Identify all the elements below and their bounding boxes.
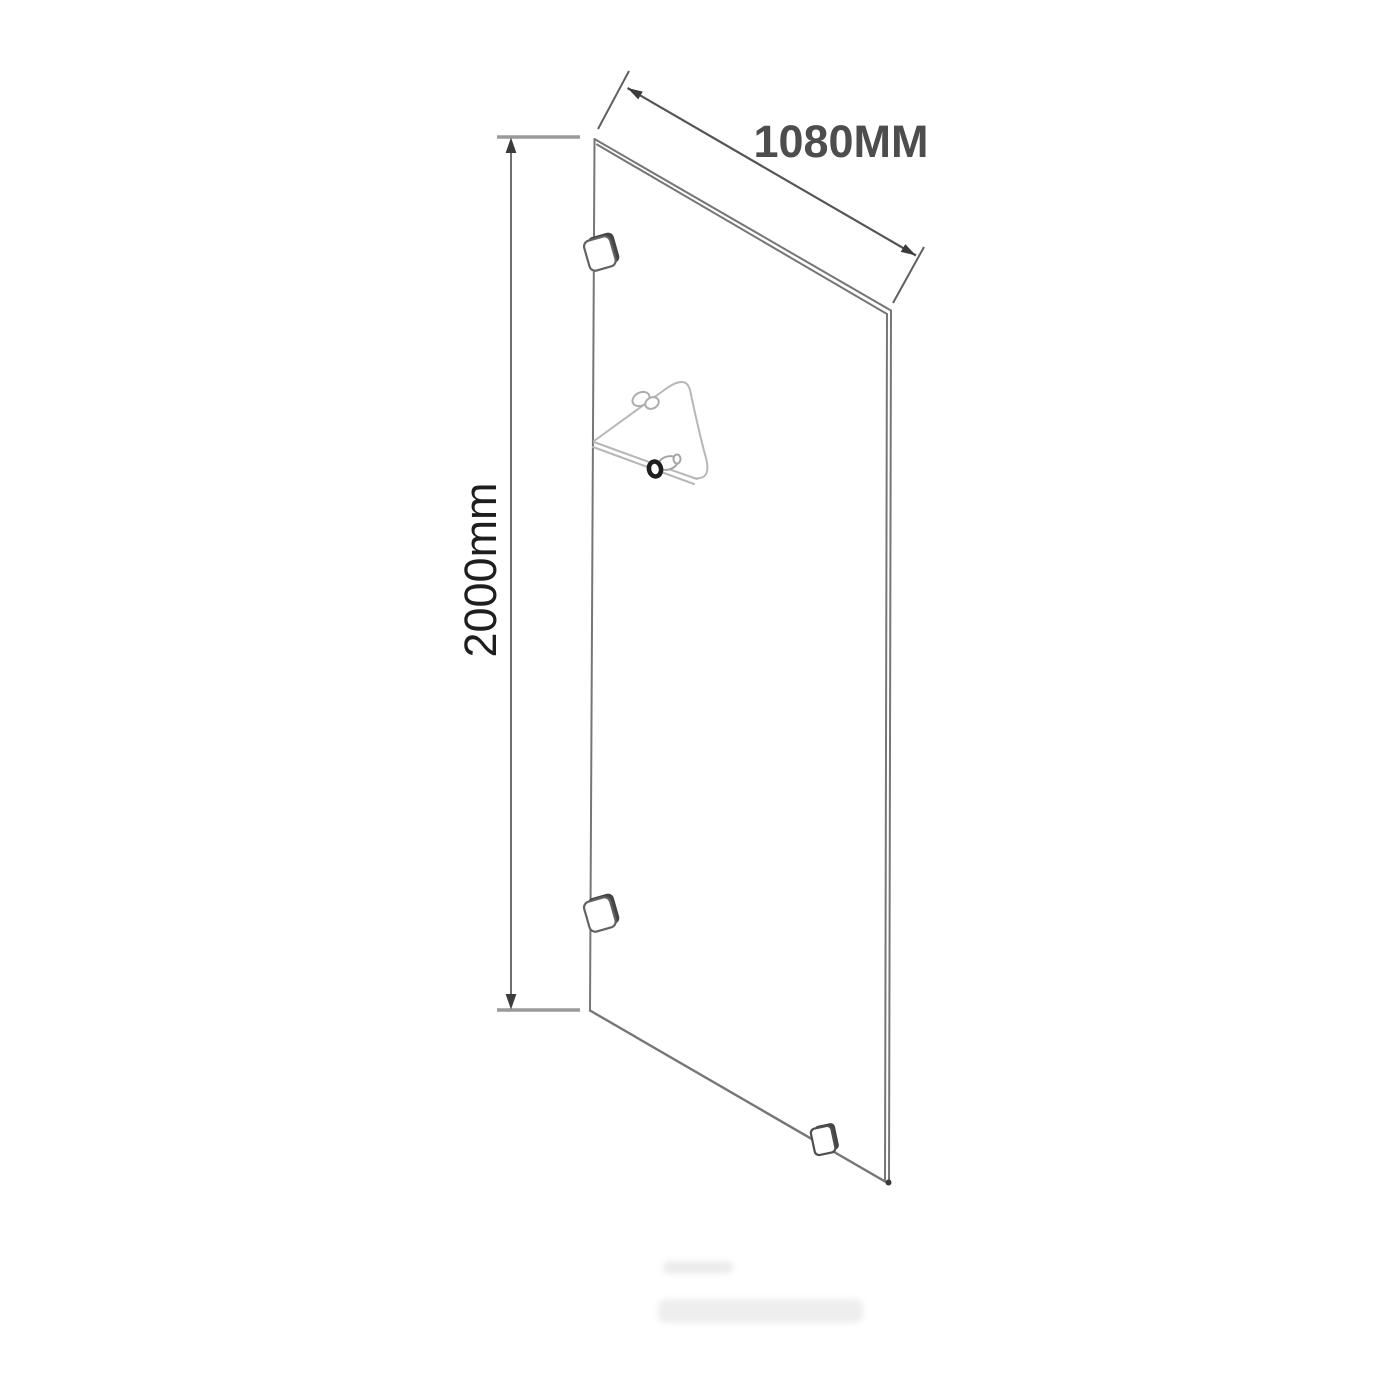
panel-top-edge-inner: [597, 145, 887, 315]
floor-bracket: [810, 1122, 840, 1156]
shelf-front-edge-bottom: [593, 447, 694, 484]
panel-right-edge-inner: [885, 314, 887, 1181]
arrow-down-icon: [506, 994, 517, 1010]
glass-panel: [590, 139, 892, 1186]
arrow-lower-right-icon: [901, 244, 916, 255]
arrow-upper-left-icon: [628, 88, 643, 99]
corner-shelf-bracket: [593, 382, 707, 484]
height-label: 2000mm: [455, 482, 506, 657]
technical-drawing: 2000mm 1080MM: [0, 0, 1400, 1400]
width-label: 1080MM: [753, 116, 928, 167]
panel-bottom-edge: [590, 1011, 889, 1184]
bracket-front-face: [810, 1125, 836, 1156]
panel-corner-joint: [886, 1180, 892, 1186]
width-dimension-line: [628, 88, 917, 256]
knob-tip: [674, 455, 681, 464]
wall-bracket-bottom: [582, 892, 622, 933]
knob-dark-ring: [648, 460, 663, 477]
drawing-canvas: 2000mm 1080MM: [0, 0, 1400, 1400]
extension-tick-right: [893, 247, 924, 303]
height-dimension: 2000mm: [455, 137, 580, 1010]
shelf-front-edge-top: [594, 442, 697, 479]
extension-tick-left: [598, 71, 629, 129]
shelf-top-fitting: [630, 389, 661, 411]
panel-right-edge-outer: [889, 311, 891, 1184]
width-dimension: 1080MM: [598, 71, 929, 303]
arrow-up-icon: [506, 138, 517, 154]
wall-bracket-top: [582, 231, 622, 272]
